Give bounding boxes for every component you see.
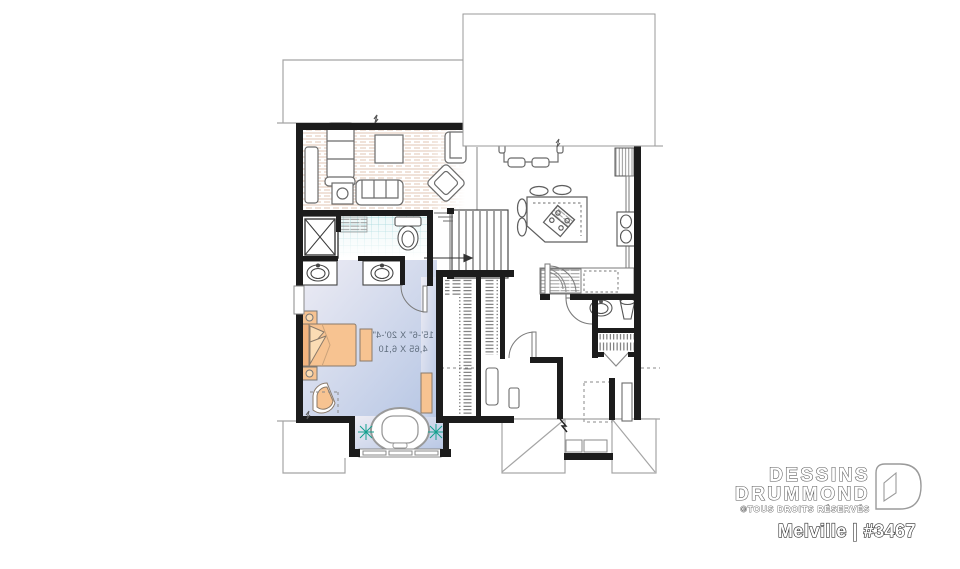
shower bbox=[302, 216, 338, 258]
kitchen-counter-bottom bbox=[540, 268, 634, 294]
powder-toilet bbox=[620, 299, 635, 320]
closet-shelf-hatch bbox=[459, 297, 473, 415]
sofa-long bbox=[305, 147, 318, 203]
dishwasher bbox=[584, 271, 618, 292]
brand-line2: DRUMMOND bbox=[735, 484, 870, 505]
side-table-with-lamp bbox=[332, 183, 353, 204]
bed bbox=[302, 324, 356, 366]
brand-rights: ©TOUS DROITS RÉSERVÉS bbox=[741, 504, 871, 514]
linen-shelves bbox=[340, 217, 367, 232]
brand-line1: DESSINS bbox=[769, 465, 870, 486]
stool bbox=[518, 199, 527, 217]
dresser bbox=[421, 373, 432, 413]
dining-chair bbox=[508, 158, 525, 167]
coffee-table bbox=[375, 135, 403, 163]
dresser bbox=[622, 383, 632, 421]
drummond-d-icon bbox=[876, 464, 921, 509]
deck-outline-bottom-left bbox=[277, 421, 345, 473]
closet-shelf-hatch bbox=[445, 279, 472, 296]
bifold-door bbox=[603, 352, 629, 366]
bedroom2-door bbox=[509, 332, 536, 358]
refrigerator bbox=[615, 148, 634, 176]
vanity-sink-right bbox=[363, 261, 402, 285]
sectional-sofa bbox=[325, 123, 355, 186]
left-wall-window bbox=[294, 286, 304, 314]
stool bbox=[553, 186, 571, 195]
freestanding-tub bbox=[371, 408, 429, 452]
loveseat bbox=[356, 180, 403, 205]
plant bbox=[428, 424, 444, 440]
dimension-metric: 4,65 X 6,10 bbox=[378, 344, 427, 354]
floor-plan-page: 15'-6" X 20'-4" 4,65 X 6,10 bbox=[0, 0, 960, 569]
brand-logo: DESSINS DRUMMOND ©TOUS DROITS RÉSERVÉS M… bbox=[735, 464, 921, 541]
plant bbox=[358, 424, 374, 440]
dimension-imperial: 15'-6" X 20'-4" bbox=[372, 330, 433, 340]
kitchen-island bbox=[518, 186, 588, 243]
floor-plan-drawing: 15'-6" X 20'-4" 4,65 X 6,10 bbox=[0, 0, 960, 569]
nightstand-bottom bbox=[302, 367, 317, 380]
console-table bbox=[486, 368, 498, 405]
closet-shelf-hatch bbox=[484, 279, 498, 355]
dining-chair bbox=[532, 158, 549, 167]
stool bbox=[530, 187, 548, 196]
console-table bbox=[509, 388, 519, 408]
bench bbox=[360, 329, 372, 361]
kitchen-sink bbox=[617, 212, 635, 246]
bed-headboard bbox=[302, 324, 309, 366]
hall-closet bbox=[594, 334, 638, 366]
blank-overlay bbox=[463, 14, 663, 147]
plan-name-number: Melville | #3467 bbox=[778, 521, 916, 541]
rear-bay-window bbox=[564, 440, 613, 460]
kitchen bbox=[518, 148, 636, 294]
future-space-dashed bbox=[584, 382, 612, 422]
stool bbox=[518, 218, 527, 236]
vanity-sink-left bbox=[300, 261, 337, 285]
tub-window bbox=[359, 449, 441, 457]
hallway bbox=[486, 368, 519, 408]
